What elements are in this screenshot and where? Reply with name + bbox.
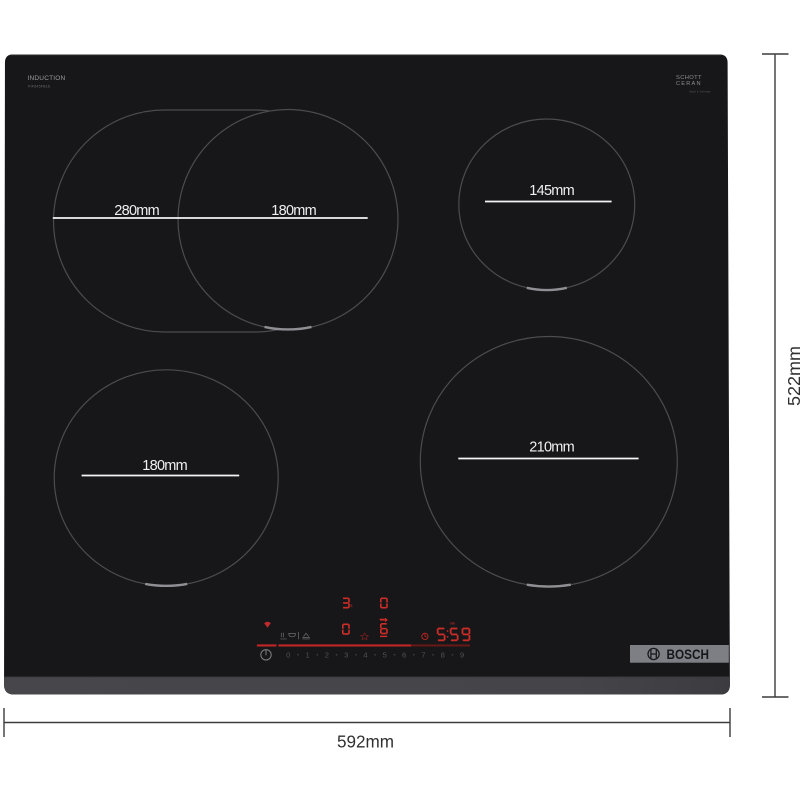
svg-text:PIF645FB1E: PIF645FB1E xyxy=(28,85,51,89)
svg-text:8: 8 xyxy=(441,650,445,659)
svg-text:0: 0 xyxy=(286,650,290,659)
svg-text:5: 5 xyxy=(383,650,387,659)
svg-text:180mm: 180mm xyxy=(271,203,317,219)
svg-text:4: 4 xyxy=(363,650,367,659)
svg-text:BOSCH: BOSCH xyxy=(667,646,710,662)
svg-text:6: 6 xyxy=(402,650,406,659)
svg-text:210mm: 210mm xyxy=(529,440,575,456)
svg-text:2: 2 xyxy=(325,650,329,659)
svg-text:INDUCTION: INDUCTION xyxy=(28,75,66,82)
svg-text:Made in Germany: Made in Germany xyxy=(690,90,712,93)
svg-text:CERAN: CERAN xyxy=(676,81,702,87)
svg-text:3: 3 xyxy=(344,650,348,659)
svg-text:145mm: 145mm xyxy=(529,183,575,199)
svg-text:7: 7 xyxy=(421,650,425,659)
svg-text:180mm: 180mm xyxy=(142,458,188,474)
svg-text:592mm: 592mm xyxy=(337,731,394,751)
svg-text:280mm: 280mm xyxy=(114,203,160,219)
svg-text:1: 1 xyxy=(305,650,309,659)
svg-text:9: 9 xyxy=(460,650,464,659)
svg-text:min: min xyxy=(450,622,456,626)
svg-text:522mm: 522mm xyxy=(784,346,800,406)
